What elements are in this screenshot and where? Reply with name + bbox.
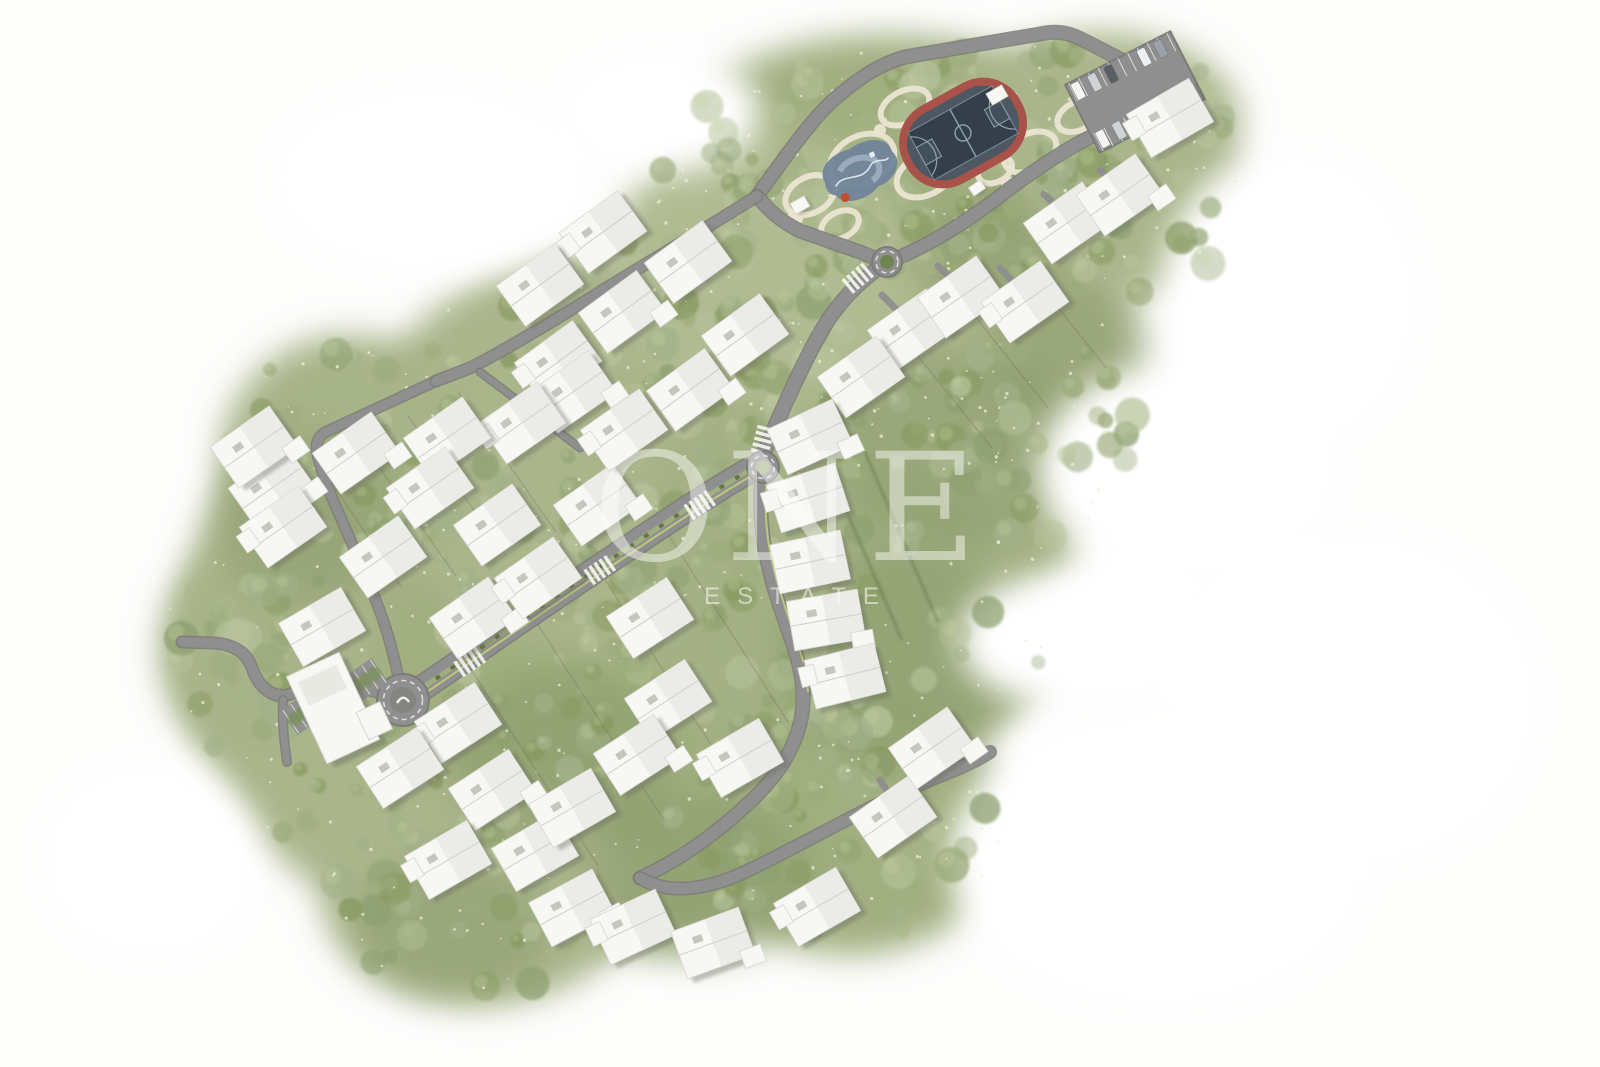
grass-speckle (270, 758, 273, 761)
grass-speckle (1069, 372, 1072, 375)
tree-highlight (723, 230, 730, 237)
tree-highlight (458, 572, 469, 583)
tree-highlight (839, 841, 850, 852)
grass-speckle (1065, 421, 1069, 425)
grass-speckle (664, 221, 667, 224)
tree-canopy (312, 807, 327, 822)
grass-speckle (889, 660, 891, 662)
grass-speckle (1030, 80, 1032, 82)
tree-highlight (807, 781, 818, 792)
grass-speckle (846, 769, 850, 773)
tree-canopy (534, 694, 553, 713)
tree-canopy (372, 356, 400, 384)
grass-speckle (681, 741, 684, 744)
tree-highlight (265, 364, 271, 370)
grass-speckle (1195, 168, 1197, 170)
tree-highlight (695, 94, 710, 109)
grass-speckle (361, 938, 363, 940)
grass-speckle (997, 452, 999, 454)
grass-speckle (198, 673, 201, 676)
tree-highlight (902, 74, 915, 87)
tree-highlight (474, 975, 488, 989)
grass-speckle (297, 808, 299, 810)
grass-speckle (966, 370, 968, 372)
grass-speckle (369, 848, 373, 852)
tree-highlight (752, 849, 758, 855)
grass-speckle (924, 396, 927, 399)
grass-speckle (798, 323, 800, 325)
grass-speckle (749, 402, 752, 405)
grass-speckle (447, 573, 450, 576)
grass-speckle (1040, 547, 1042, 549)
grass-speckle (276, 673, 280, 677)
grass-speckle (425, 375, 428, 378)
tree-highlight (1129, 281, 1142, 294)
grass-speckle (730, 86, 734, 90)
grass-speckle (907, 642, 909, 644)
grass-speckle (904, 100, 907, 103)
tree-highlight (494, 695, 502, 703)
grass-speckle (1102, 430, 1105, 433)
tree-highlight (723, 176, 732, 185)
tree-highlight (367, 520, 374, 527)
grass-speckle (1024, 639, 1027, 642)
grass-speckle (984, 409, 987, 412)
tree-highlight (953, 378, 963, 388)
grass-speckle (222, 564, 224, 566)
background-fade (1160, 150, 1420, 450)
grass-speckle (905, 225, 907, 227)
tree-highlight (357, 533, 364, 540)
grass-speckle (217, 683, 220, 686)
tree-highlight (1092, 241, 1104, 253)
grass-speckle (1097, 488, 1100, 491)
grass-speckle (811, 866, 815, 870)
grass-speckle (913, 714, 916, 717)
grass-speckle (503, 748, 506, 751)
grass-speckle (873, 409, 876, 412)
grass-speckle (772, 197, 775, 200)
tree-canopy (204, 592, 235, 623)
grass-speckle (997, 540, 1000, 543)
grass-speckle (1031, 558, 1034, 561)
grass-speckle (556, 774, 559, 777)
grass-speckle (946, 262, 949, 265)
grass-speckle (1037, 422, 1040, 425)
grass-speckle (269, 781, 271, 783)
tree-highlight (1014, 497, 1027, 510)
grass-speckle (523, 488, 525, 490)
grass-speckle (287, 406, 289, 408)
tree-canopy (283, 405, 301, 423)
tree-highlight (1080, 150, 1095, 165)
grass-speckle (561, 612, 564, 615)
grass-speckle (453, 928, 456, 931)
grass-speckle (367, 351, 370, 354)
park-plaza (874, 124, 886, 136)
grass-speckle (921, 697, 924, 700)
tree-highlight (324, 341, 339, 356)
tree-highlight (864, 753, 879, 768)
grass-speckle (505, 729, 508, 732)
grass-speckle (1071, 463, 1074, 466)
grass-speckle (482, 987, 485, 990)
tree-highlight (716, 892, 726, 902)
grass-speckle (789, 825, 791, 827)
grass-speckle (500, 938, 502, 940)
grass-speckle (959, 649, 961, 651)
roundabout (872, 247, 902, 277)
grass-speckle (919, 856, 921, 858)
grass-speckle (1232, 156, 1234, 158)
tree-canopy (1037, 76, 1057, 96)
grass-speckle (753, 90, 756, 93)
tree-highlight (512, 935, 519, 942)
grass-speckle (420, 916, 423, 919)
grass-speckle (1029, 381, 1031, 383)
tree-highlight (562, 480, 573, 491)
grass-speckle (568, 488, 570, 490)
grass-speckle (1193, 140, 1196, 143)
tree-canopy (396, 920, 426, 950)
grass-speckle (857, 758, 859, 760)
grass-speckle (332, 874, 335, 877)
tree-canopy (1034, 519, 1067, 552)
grass-speckle (1104, 277, 1106, 279)
grass-speckle (443, 793, 445, 795)
grass-speckle (860, 52, 863, 55)
grass-speckle (943, 213, 945, 215)
tree-highlight (773, 724, 788, 739)
grass-speckle (841, 78, 843, 80)
tree-highlight (738, 857, 745, 864)
tree-canopy (761, 694, 775, 708)
tree-highlight (397, 822, 407, 832)
tree-highlight (887, 69, 898, 80)
grass-speckle (266, 826, 268, 828)
tree-canopy (463, 901, 482, 920)
tree-canopy (312, 575, 324, 587)
tree-canopy (1115, 397, 1150, 432)
grass-speckle (1048, 117, 1051, 120)
tree-highlight (804, 67, 813, 76)
grass-speckle (1198, 251, 1202, 255)
grass-speckle (444, 776, 447, 779)
tree-canopy (893, 909, 906, 922)
tree-canopy (449, 921, 467, 939)
tree-canopy (361, 949, 386, 974)
tree-canopy (204, 736, 225, 757)
grass-speckle (672, 187, 675, 190)
grass-speckle (214, 561, 217, 564)
tree-highlight (808, 257, 818, 267)
tree-highlight (1081, 347, 1088, 354)
tree-canopy (369, 881, 382, 894)
grass-speckle (710, 290, 713, 293)
tree-canopy (342, 845, 356, 859)
tree-canopy (1124, 254, 1139, 269)
tree-canopy (574, 612, 587, 625)
tree-highlight (1192, 230, 1200, 238)
grass-speckle (643, 360, 645, 362)
grass-speckle (976, 790, 979, 793)
grass-speckle (688, 797, 692, 801)
tree-canopy (970, 793, 1001, 824)
grass-speckle (758, 90, 761, 93)
grass-speckle (947, 267, 950, 270)
grass-speckle (870, 897, 873, 900)
tree-highlight (664, 809, 674, 819)
tree-highlight (1064, 378, 1074, 388)
grass-speckle (996, 420, 998, 422)
tree-canopy (516, 966, 550, 1000)
grass-speckle (523, 823, 525, 825)
grass-speckle (488, 449, 490, 451)
grass-speckle (627, 366, 630, 369)
background-fade (270, 85, 590, 275)
tree-canopy (725, 656, 759, 690)
tree-highlight (352, 786, 358, 792)
grass-speckle (995, 455, 999, 459)
tree-highlight (653, 160, 665, 172)
tree-highlight (581, 635, 590, 644)
grass-speckle (967, 229, 969, 231)
tree-highlight (1091, 409, 1099, 417)
grass-speckle (246, 757, 248, 759)
grass-speckle (1005, 392, 1008, 395)
grass-speckle (1123, 255, 1126, 258)
tree-highlight (1099, 368, 1110, 379)
grass-speckle (393, 887, 395, 889)
tree-canopy (471, 452, 499, 480)
grass-speckle (201, 701, 204, 704)
grass-speckle (190, 710, 192, 712)
grass-speckle (453, 509, 455, 511)
grass-speckle (459, 909, 462, 912)
grass-speckle (834, 139, 836, 141)
grass-speckle (747, 134, 751, 138)
tree-highlight (778, 290, 790, 302)
grass-speckle (329, 820, 332, 823)
grass-speckle (1066, 75, 1069, 78)
grass-speckle (1040, 646, 1043, 649)
grass-speckle (558, 684, 561, 687)
grass-speckle (789, 322, 791, 324)
grass-speckle (968, 790, 971, 793)
grass-speckle (997, 840, 999, 842)
grass-speckle (615, 843, 617, 845)
grass-speckle (737, 223, 739, 225)
grass-speckle (928, 418, 930, 420)
tree-canopy (911, 667, 937, 693)
background-fade (40, 760, 260, 960)
grass-speckle (1046, 452, 1048, 454)
grass-speckle (1090, 501, 1093, 504)
grass-speckle (1106, 163, 1108, 165)
grass-speckle (760, 407, 763, 410)
tree-canopy (1172, 169, 1190, 187)
grass-speckle (818, 745, 821, 748)
grass-speckle (800, 341, 802, 343)
grass-speckle (819, 757, 822, 760)
grass-speckle (372, 355, 374, 357)
grass-speckle (411, 615, 414, 618)
grass-speckle (884, 624, 886, 626)
tree-highlight (968, 66, 977, 75)
grass-speckle (1034, 46, 1036, 48)
watermark: ONE ESTATE (593, 422, 987, 610)
tree-canopy (979, 223, 999, 243)
tree-highlight (1030, 436, 1039, 445)
tree-highlight (958, 199, 966, 207)
grass-speckle (1004, 396, 1007, 399)
tree-canopy (1020, 246, 1033, 259)
grass-speckle (1170, 280, 1173, 283)
grass-speckle (1071, 360, 1074, 363)
grass-speckle (547, 529, 549, 531)
tree-highlight (916, 367, 924, 375)
grass-speckle (265, 376, 267, 378)
grass-speckle (822, 283, 825, 286)
grass-speckle (345, 916, 348, 919)
grass-speckle (528, 663, 530, 665)
grass-speckle (657, 201, 660, 204)
grass-speckle (645, 383, 647, 385)
grass-speckle (832, 743, 835, 746)
grass-speckle (423, 571, 426, 574)
tree-highlight (309, 780, 315, 786)
grass-speckle (169, 608, 171, 610)
grass-speckle (686, 228, 688, 230)
grass-speckle (290, 410, 293, 413)
tree-highlight (719, 140, 730, 151)
grass-speckle (877, 408, 879, 410)
tree-highlight (724, 298, 735, 309)
tree-highlight (1059, 448, 1068, 457)
grass-speckle (416, 805, 419, 808)
grass-speckle (638, 839, 640, 841)
background-fade (950, 710, 1370, 1010)
grass-speckle (1011, 459, 1013, 461)
grass-speckle (685, 179, 689, 183)
tree-highlight (712, 121, 726, 135)
tree-canopy (338, 898, 362, 922)
grass-speckle (875, 198, 878, 201)
grass-speckle (502, 839, 504, 841)
grass-speckle (792, 322, 795, 325)
grass-speckle (608, 659, 610, 661)
grass-speckle (466, 929, 469, 932)
grass-speckle (1063, 189, 1067, 193)
grass-speckle (507, 978, 509, 980)
grass-speckle (1068, 97, 1072, 101)
grass-speckle (848, 741, 850, 743)
tree-highlight (586, 665, 594, 673)
grass-speckle (313, 413, 315, 415)
roundabout-island (880, 255, 894, 269)
tree-canopy (682, 312, 696, 326)
tree-canopy (491, 893, 519, 921)
grass-speckle (980, 377, 982, 379)
tree-canopy (774, 103, 796, 125)
grass-speckle (381, 965, 384, 968)
grass-speckle (1038, 67, 1041, 70)
tree-canopy (972, 596, 1004, 628)
grass-speckle (1166, 168, 1169, 171)
grass-speckle (553, 619, 555, 621)
tree-canopy (700, 622, 713, 635)
grass-speckle (1035, 89, 1038, 92)
grass-speckle (256, 627, 258, 629)
grass-speckle (602, 607, 604, 609)
grass-speckle (575, 544, 577, 546)
grass-speckle (820, 786, 823, 789)
tree-highlight (447, 356, 454, 363)
grass-speckle (405, 373, 407, 375)
grass-speckle (969, 246, 972, 249)
grass-speckle (1101, 323, 1104, 326)
grass-speckle (728, 276, 730, 278)
tree-canopy (714, 687, 749, 722)
grass-speckle (995, 461, 997, 463)
grass-speckle (301, 362, 304, 365)
tree-canopy (184, 581, 204, 601)
tree-highlight (890, 393, 900, 403)
grass-speckle (981, 600, 984, 603)
tree-highlight (651, 330, 666, 345)
grass-speckle (1013, 427, 1016, 430)
tree-canopy (1173, 234, 1192, 253)
tree-highlight (596, 767, 601, 772)
tree-highlight (251, 576, 267, 592)
grass-speckle (977, 684, 980, 687)
tree-canopy (1097, 432, 1123, 458)
grass-speckle (390, 605, 393, 608)
tree-highlight (563, 451, 569, 457)
grass-speckle (481, 922, 484, 925)
grass-speckle (978, 406, 981, 409)
watermark-subtitle-text: ESTATE (704, 583, 896, 610)
grass-speckle (324, 412, 326, 414)
grass-speckle (577, 478, 580, 481)
grass-speckle (776, 718, 779, 721)
grass-speckle (1233, 179, 1236, 182)
grass-speckle (1004, 570, 1007, 573)
grass-speckle (442, 529, 445, 532)
grass-speckle (943, 666, 945, 668)
grass-speckle (523, 938, 527, 942)
grass-speckle (704, 728, 707, 731)
grass-speckle (830, 349, 833, 352)
grass-speckle (472, 583, 475, 586)
grass-speckle (997, 689, 999, 691)
tree-canopy (522, 922, 541, 941)
grass-speckle (316, 565, 319, 568)
grass-speckle (361, 913, 364, 916)
grass-speckle (1203, 167, 1206, 170)
grass-speckle (945, 826, 948, 829)
grass-speckle (980, 827, 983, 830)
grass-speckle (916, 855, 919, 858)
tree-canopy (272, 821, 294, 843)
grass-speckle (427, 620, 430, 623)
tree-canopy (560, 697, 582, 719)
grass-speckle (557, 749, 560, 752)
tree-canopy (817, 746, 838, 767)
tree-highlight (1195, 250, 1211, 266)
grass-speckle (834, 855, 837, 858)
tree-highlight (984, 341, 991, 348)
